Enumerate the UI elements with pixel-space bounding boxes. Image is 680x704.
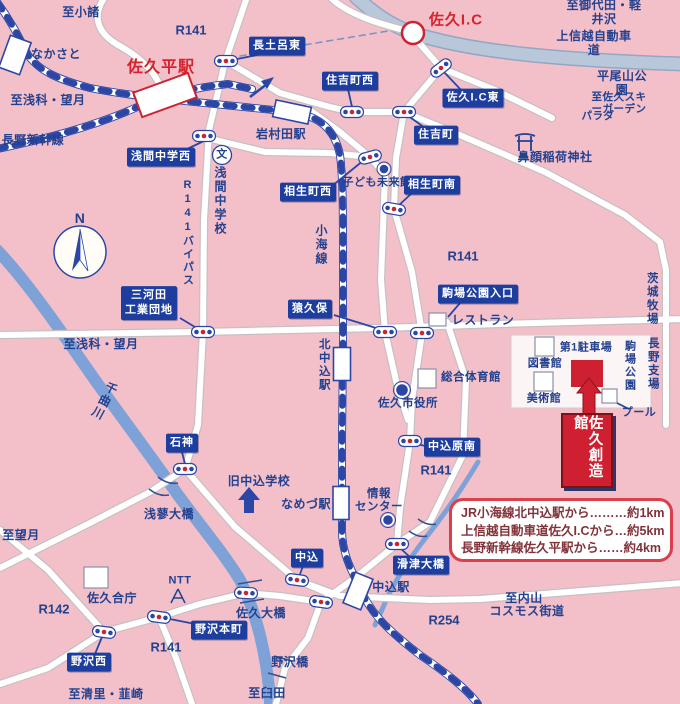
distance-info-box: JR小海線北中込駅から………約1km 上信越自動車道佐久I.Cから…約5km 長… <box>449 498 673 562</box>
station-rect-icon <box>333 487 349 520</box>
restaurant-square-icon <box>429 313 446 326</box>
station-rect-icon <box>334 348 351 381</box>
route-map: 至小諸R141なかさと至浅科・望月長野新幹線至御代田・軽井沢上信越自動車道平尾山… <box>0 0 680 704</box>
traffic-signal-icon <box>215 56 238 67</box>
library-square-icon <box>534 372 553 391</box>
traffic-signal-icon <box>411 328 434 339</box>
traffic-signal-icon <box>193 131 216 142</box>
torii-shrine-icon <box>515 134 535 151</box>
distance-line-1: JR小海線北中込駅から………約1km <box>461 505 661 523</box>
poi-dot-icon <box>396 384 409 397</box>
map-canvas <box>0 0 680 704</box>
poi-dot-icon <box>379 164 389 174</box>
government-office-square-icon <box>84 567 108 588</box>
traffic-signal-icon <box>374 327 397 338</box>
station-rect-icon <box>0 35 31 74</box>
distance-line-2: 上信越自動車道佐久I.Cから…約5km <box>461 523 661 541</box>
destination-name: 佐久創造館 <box>573 415 602 486</box>
station-rect-sakudaira <box>133 73 196 117</box>
traffic-signal-icon <box>393 107 416 118</box>
traffic-signal-icon <box>174 464 197 475</box>
ntt-antenna-icon <box>171 589 185 603</box>
gymnasium-square-icon <box>418 369 436 388</box>
compass-icon <box>54 226 106 278</box>
old-school-arrow-icon <box>238 487 260 513</box>
traffic-signal-icon <box>341 107 364 118</box>
traffic-signal-icon <box>234 587 258 599</box>
distance-line-3: 長野新幹線佐久平駅から……約4km <box>461 540 661 558</box>
pool-square-icon <box>602 389 617 403</box>
parking-square-icon <box>535 337 554 356</box>
traffic-signal-icon <box>285 573 309 587</box>
poi-dot-icon <box>383 515 394 526</box>
destination-box: 佐久創造館 <box>561 413 613 488</box>
traffic-signal-icon <box>399 436 422 447</box>
school-symbol-circle <box>213 146 232 165</box>
traffic-signal-icon <box>192 327 215 338</box>
traffic-signal-icon <box>386 539 409 550</box>
saku-ic-circle-icon <box>402 22 424 44</box>
